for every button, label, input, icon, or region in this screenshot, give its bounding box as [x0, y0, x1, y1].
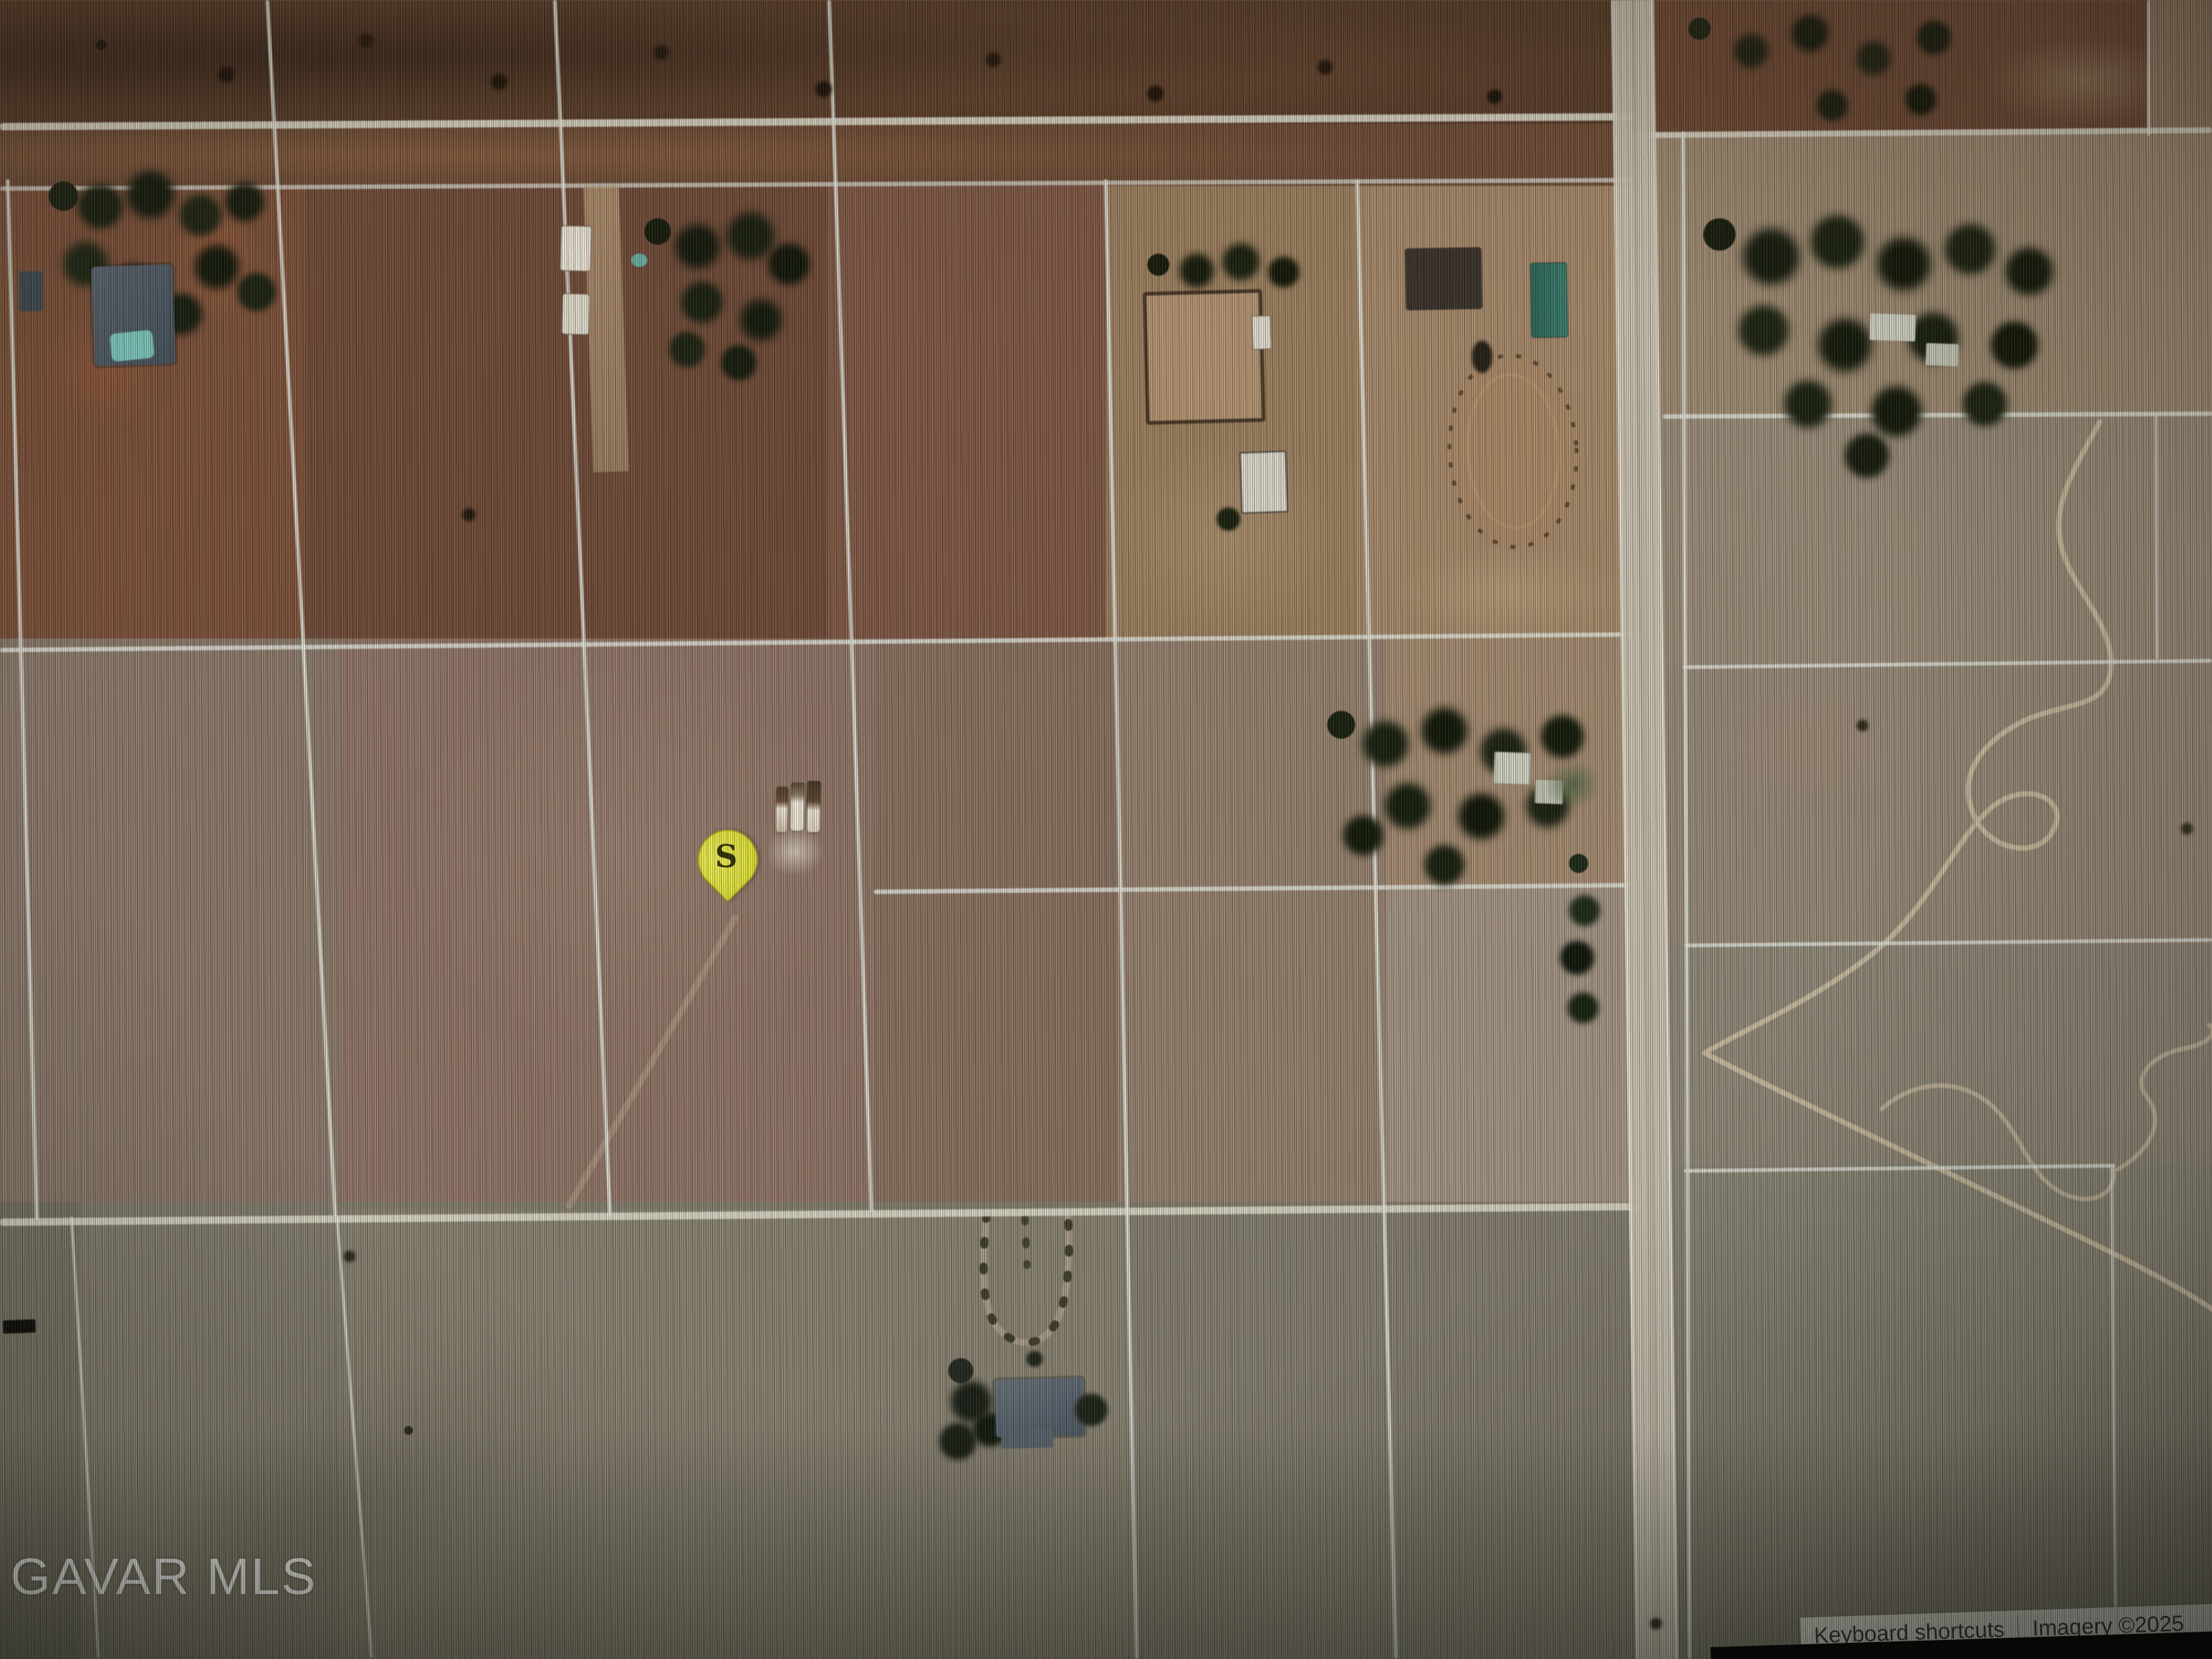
house-roof [1493, 751, 1531, 785]
shed-roof [19, 271, 43, 311]
stock-tank [631, 254, 647, 267]
screen-photo-of-map: { "map": { "marker": { "label": "S" }, "… [0, 0, 2212, 1659]
fenced-yard [1143, 289, 1266, 425]
u-driveway-inner-bushes [1025, 1218, 1027, 1265]
horse-arena [1444, 352, 1581, 551]
tree-cluster [49, 181, 78, 211]
mls-watermark: GAVAR MLS [10, 1547, 317, 1606]
satellite-imagery-layer [0, 0, 2212, 1659]
lawn-patch [1545, 759, 1600, 810]
tree [1075, 1394, 1107, 1426]
tree-cluster [644, 218, 671, 245]
trailer-roof [790, 782, 804, 832]
shed-roof [1925, 343, 1958, 366]
trailer-roof [775, 786, 788, 833]
winding-trail [1705, 422, 2212, 1311]
barn-roof [1239, 451, 1289, 514]
map-canvas[interactable]: S GAVAR MLS Keyboard shortcuts Imagery ©… [0, 0, 2212, 1659]
tree [1026, 1351, 1043, 1367]
scattered-bushes [404, 1426, 413, 1435]
tree-cluster [1688, 18, 1711, 40]
trailer-roof [560, 225, 592, 271]
shed-roof [1251, 316, 1272, 350]
scattered-bushes [96, 40, 106, 50]
trailer-roof [806, 780, 821, 833]
tree-cluster [948, 1358, 973, 1383]
winding-trail-branch [1882, 1085, 2114, 1199]
tree-cluster [1147, 254, 1169, 276]
house-roof [1869, 313, 1916, 341]
green-roof-barn [1530, 262, 1568, 338]
fence-segment [3, 1319, 36, 1334]
bush-row [1569, 854, 1588, 873]
map-pin-marker[interactable]: S [686, 822, 767, 903]
map-pin-label: S [686, 838, 767, 874]
tree-cluster [1327, 711, 1355, 739]
tree [1217, 507, 1240, 531]
swimming-pool [109, 330, 155, 362]
trailer-roof [561, 293, 590, 335]
concrete-pad [766, 828, 824, 876]
tree-cluster [1703, 218, 1736, 251]
winding-trail-squiggle [2118, 1025, 2212, 1169]
shed-roof [1405, 247, 1482, 310]
parcel-line [2147, 0, 2150, 136]
tree [1472, 341, 1492, 373]
house-wing-roof [1001, 1428, 1054, 1449]
